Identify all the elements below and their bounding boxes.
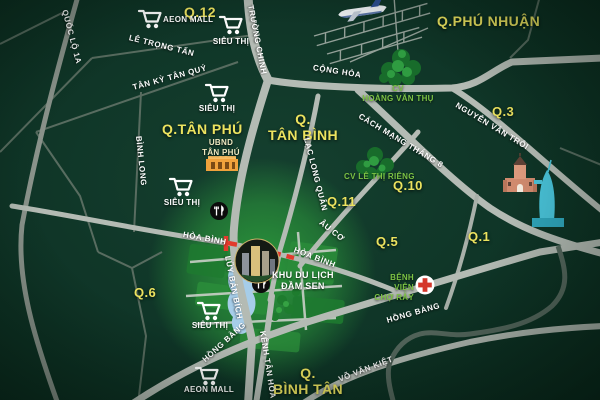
cart-icon	[220, 17, 242, 34]
road-cong-hoa	[268, 58, 600, 89]
road-cach-mang-thang-8	[358, 90, 600, 254]
road-vo-van-kiet	[302, 326, 600, 400]
map-graphics	[0, 0, 600, 400]
cart-icon	[206, 85, 228, 102]
cathedral-icon	[503, 153, 537, 192]
road-truong-chinh	[248, 0, 268, 80]
town-hall-icon	[206, 156, 238, 171]
restaurant-icon	[210, 202, 228, 220]
hospital-cross-icon	[416, 276, 435, 295]
project-photo-marker	[235, 239, 279, 283]
map-canvas: Q.12 Q.PHÚ NHUẬN Q.3 Q.TÂN PHÚ Q. TÂN BÌ…	[0, 0, 600, 400]
cart-icon	[196, 368, 218, 385]
cart-icon	[139, 11, 161, 28]
road-district-1	[446, 196, 477, 308]
tower-icon	[532, 160, 564, 227]
park-le-thi-rieng-trees	[356, 147, 394, 179]
main-roads	[12, 0, 600, 400]
road-au-co	[300, 132, 418, 266]
cart-icon	[170, 179, 192, 196]
airplane-icon	[337, 0, 388, 23]
road-quoc-lo-1a	[21, 0, 78, 400]
park-hoang-van-thu-trees	[379, 49, 421, 86]
